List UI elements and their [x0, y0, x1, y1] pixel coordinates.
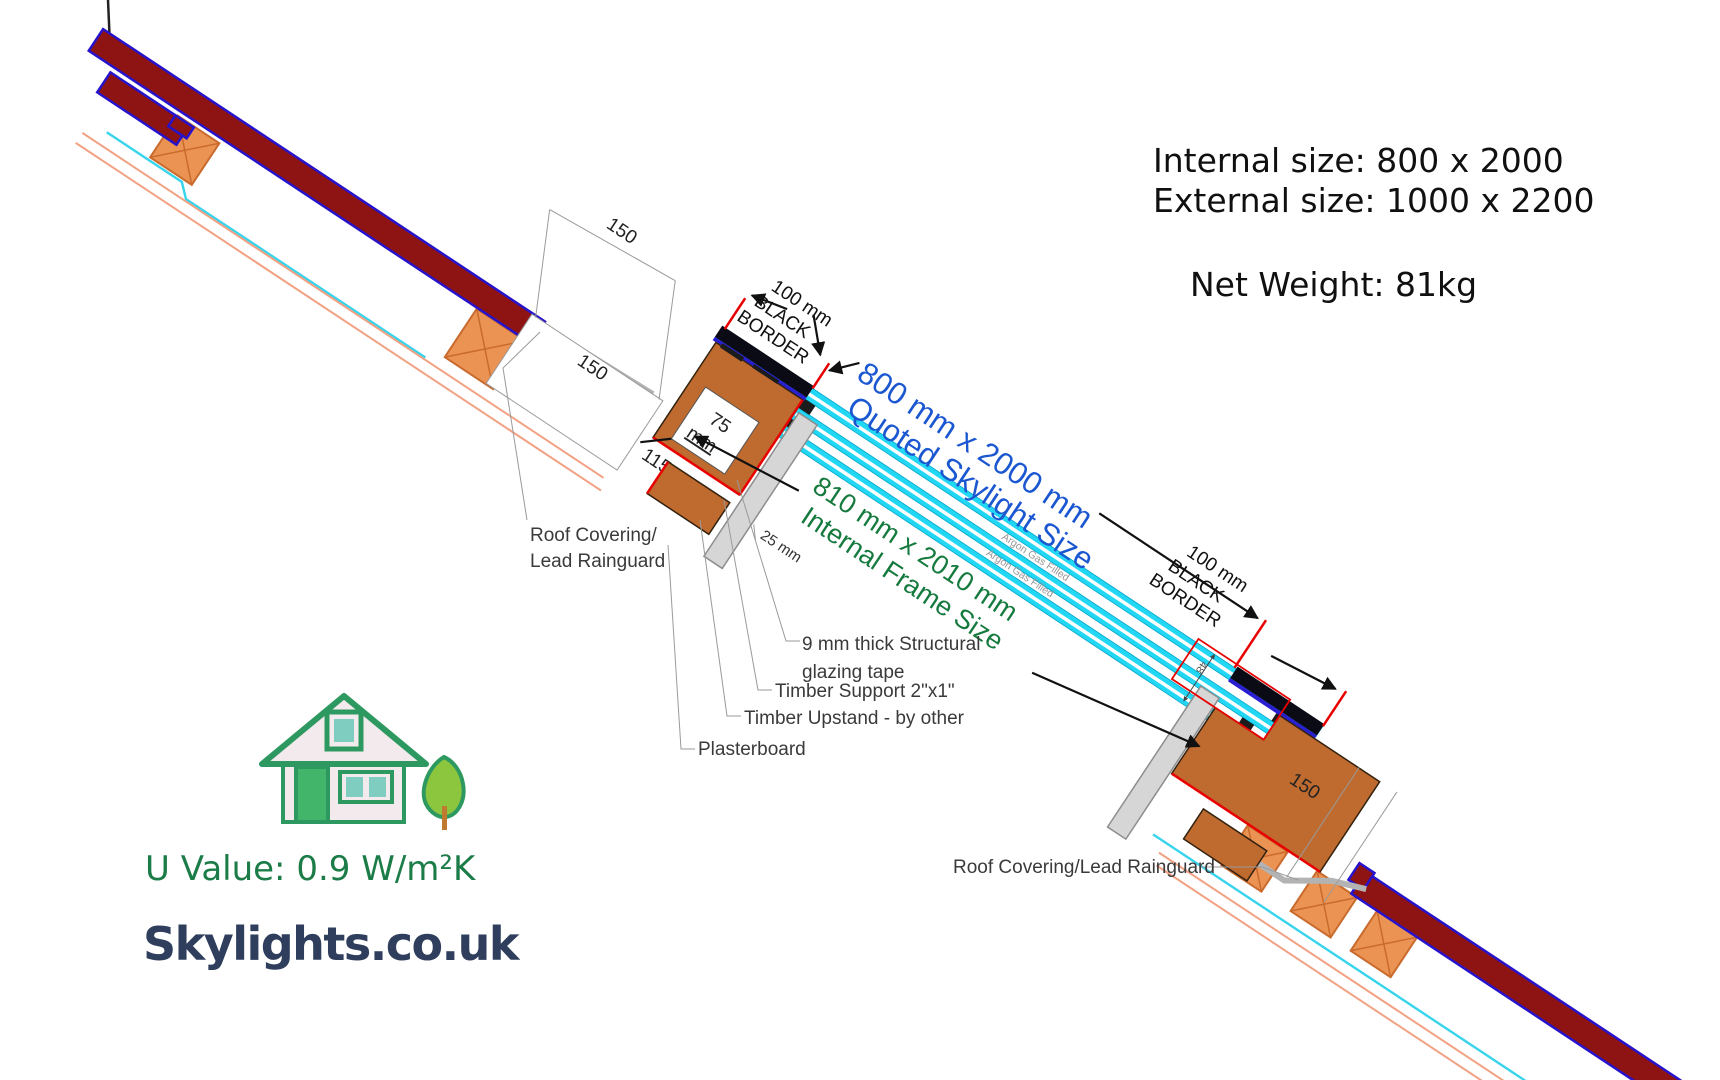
- roof-tile-band-lower: [1351, 872, 1720, 1080]
- timber-upstand-label: Timber Upstand - by other: [744, 708, 965, 729]
- house-icon: [262, 696, 464, 830]
- house-window-glass: [346, 777, 363, 797]
- house-door: [296, 767, 328, 822]
- roof-covering-bottom-label: Roof Covering/Lead Rainguard: [953, 857, 1215, 878]
- plasterboard-label: Plasterboard: [698, 739, 806, 760]
- glazing-tape-label-line2: glazing tape: [802, 662, 904, 683]
- border-arrow: [1271, 649, 1335, 695]
- dim-line-150-top: [550, 201, 676, 289]
- brand-logo-text: Skylights.co.uk: [143, 917, 521, 971]
- roof-covering-left-label-line1: Roof Covering/: [530, 525, 657, 546]
- external-size-text: External size: 1000 x 2200: [1153, 181, 1594, 220]
- roof-covering-left-label-line2: Lead Rainguard: [530, 551, 665, 572]
- leader-plasterboard: [668, 545, 695, 749]
- dim-label-150-top: 150: [603, 214, 641, 249]
- red-tick: [813, 363, 830, 388]
- dim-label-25mm: 25 mm: [757, 527, 805, 566]
- glazing-tape-label-line1: 9 mm thick Structural: [802, 634, 980, 655]
- red-tick: [1235, 620, 1266, 668]
- underlay-line-upper-1: [82, 133, 603, 478]
- internal-size-text: Internal size: 800 x 2000: [1153, 141, 1564, 180]
- net-weight-text: Net Weight: 81kg: [1190, 265, 1477, 304]
- tree-trunk: [442, 806, 447, 830]
- skylight-section-drawing: 150 150 115 Argon Gas Filled Argon Gas F…: [0, 0, 1720, 1080]
- attic-window-glass: [334, 719, 354, 742]
- house-window-glass: [369, 777, 386, 797]
- diagram-svg: 150 150 115 Argon Gas Filled Argon Gas F…: [0, 0, 1720, 1080]
- red-tick: [1323, 691, 1346, 726]
- roof-tile-band-upper: [89, 29, 545, 343]
- timber-support-label: Timber Support 2"x1": [775, 681, 955, 702]
- u-value-text: U Value: 0.9 W/m²K: [145, 849, 477, 889]
